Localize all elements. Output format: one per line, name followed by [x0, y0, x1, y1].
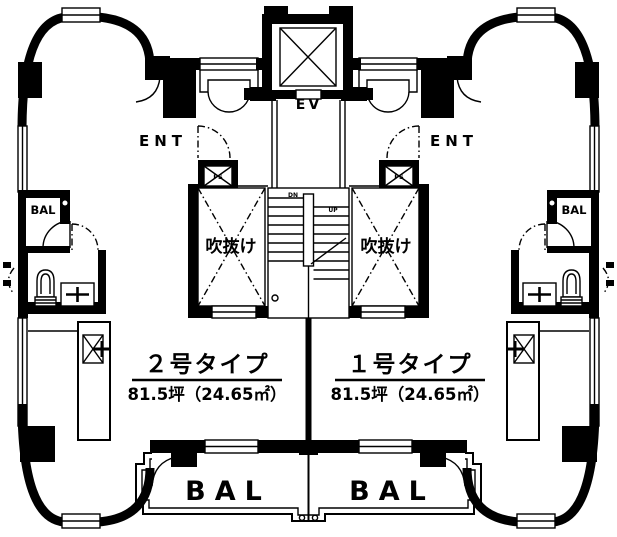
newel-post — [272, 295, 278, 301]
unit-2-name: ２号タイプ — [145, 352, 270, 378]
floor-plan-svg: EV ENT ENT BAL BAL 吹抜け 吹抜け PS PS DN UP ２… — [0, 0, 617, 537]
unit-1-name: １号タイプ — [348, 352, 473, 378]
right-half-mirrored — [309, 8, 615, 528]
unit-1-area: 81.5坪（24.65㎡） — [331, 384, 490, 404]
pipe-space-label-left: PS — [213, 173, 223, 181]
entrance-label-right: ENT — [430, 132, 478, 150]
floor-plan-page: EV ENT ENT BAL BAL 吹抜け 吹抜け PS PS DN UP ２… — [0, 0, 617, 537]
void-label-right: 吹抜け — [361, 236, 412, 257]
stair-direction-line — [311, 238, 346, 264]
pipe-space-label-right: PS — [394, 173, 404, 181]
side-balcony-label-right: BAL — [562, 203, 588, 217]
stair-up-label: UP — [328, 207, 338, 214]
entrance-label-left: ENT — [139, 132, 187, 150]
unit-2-area: 81.5坪（24.65㎡） — [128, 384, 287, 404]
bottom-balcony-label-right: BAL — [349, 476, 435, 507]
unit-divider-wall — [306, 318, 312, 521]
side-balcony-label-left: BAL — [31, 203, 57, 217]
elevator-shaft — [250, 6, 367, 101]
stair-spine-wall — [304, 194, 314, 266]
void-label-left: 吹抜け — [206, 236, 257, 257]
stair-down-label: DN — [288, 192, 298, 199]
bottom-balcony-label-left: BAL — [185, 476, 271, 507]
elevator-label: EV — [296, 97, 322, 113]
